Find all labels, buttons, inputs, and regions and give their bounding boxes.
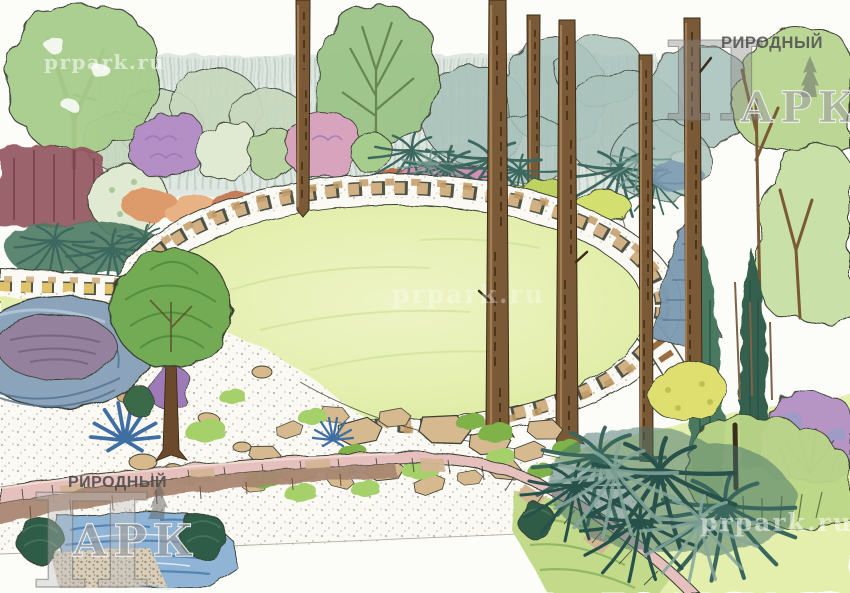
watermark-url-center: prpark.ru	[392, 280, 545, 309]
pond-water	[0, 314, 117, 380]
brand-word-bottom: АРК	[740, 83, 850, 132]
brand-word-top: РИРОДНЫЙ	[721, 33, 823, 52]
watermark-url-top-left: prpark.ru	[44, 50, 165, 74]
purple-leaf-hedge	[0, 143, 104, 227]
garden-plan-illustration: prpark.ru prpark.ru prpark.ru П РИРОДНЫЙ…	[0, 0, 850, 593]
brand-word-bottom: АРК	[72, 516, 199, 567]
brand-word-top: РИРОДНЫЙ	[68, 472, 167, 491]
bare-tree-trunk-1	[296, 0, 310, 217]
watermark-url-bottom-right: prpark.ru	[700, 508, 850, 537]
bare-tree-trunk-3	[527, 15, 540, 195]
